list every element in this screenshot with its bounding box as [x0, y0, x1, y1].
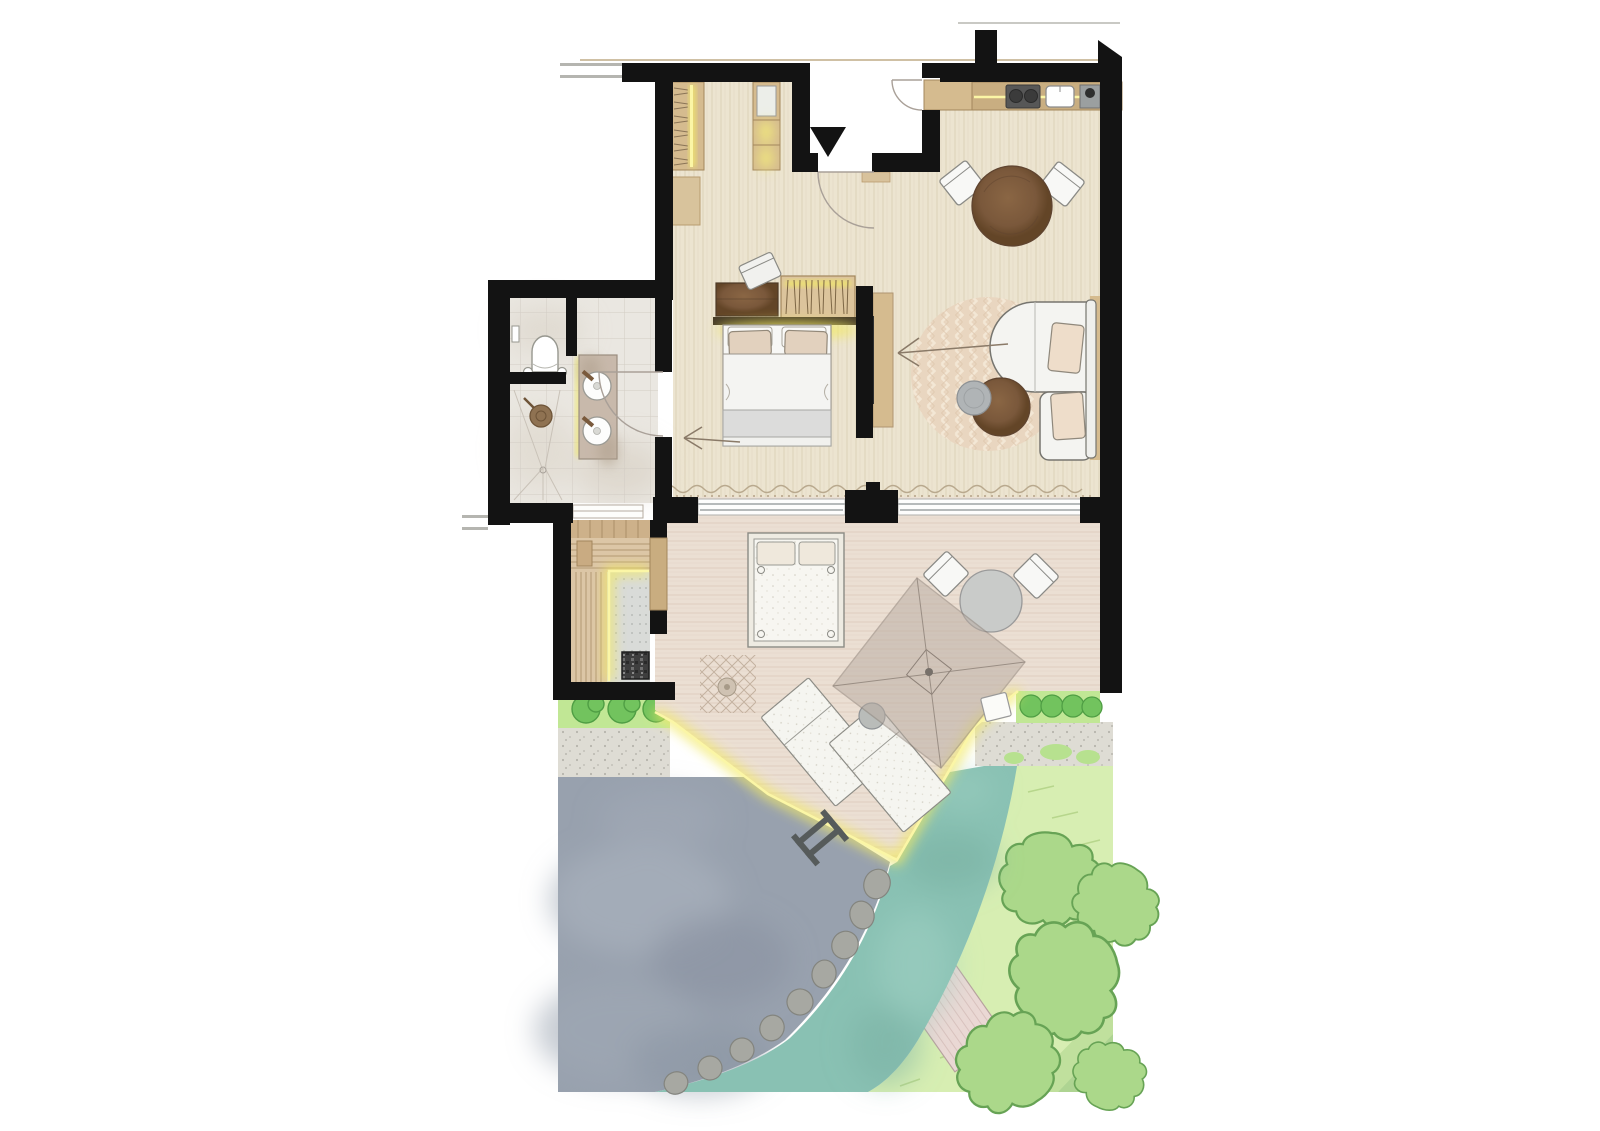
wall-sauna-right-top: [650, 520, 667, 538]
kitchenette: [924, 80, 1122, 110]
sauna-heater: [622, 652, 649, 679]
wall-sauna-bottom: [553, 682, 675, 700]
gravel-texture-left: [558, 728, 670, 777]
floor-plan-canvas: [0, 0, 1600, 1131]
dresser: [716, 283, 778, 316]
wall-pillar-stub: [866, 482, 880, 492]
tv-partition-wall: [856, 286, 873, 438]
sofa-pillow: [1048, 322, 1085, 373]
wall-porch-right: [922, 63, 940, 78]
hall-wardrobe: [672, 82, 704, 170]
floor-plan: [0, 0, 1600, 1131]
gravel-grass-patch: [1004, 752, 1024, 764]
cabinet-light: [759, 120, 773, 144]
double-bed: [723, 325, 831, 446]
wall-window-pillar-right: [1080, 497, 1122, 523]
sliding-window-right: [898, 499, 1098, 515]
duvet: [723, 354, 831, 410]
wall-right: [1100, 63, 1122, 693]
wall-bedroom-left-lower: [655, 437, 672, 499]
open-wardrobe: [781, 276, 855, 318]
wall-shower-divider: [505, 372, 566, 384]
wall-column-top: [975, 30, 997, 63]
wall-bedroom-left-upper: [655, 298, 672, 372]
wall-top-hall: [622, 63, 792, 82]
daybed-pillow: [799, 542, 835, 565]
wall-bath-top: [488, 280, 658, 298]
bed-pillow: [785, 330, 828, 356]
wall-bath-left: [488, 280, 510, 525]
gravel-grass-patch: [1076, 750, 1100, 764]
wall-wc-divider: [566, 298, 577, 356]
shower-head: [530, 405, 552, 427]
sauna-door-frame: [650, 538, 667, 610]
wall-sauna-left: [553, 520, 571, 700]
door-mat: [862, 172, 890, 182]
sauna-headrest: [577, 541, 592, 566]
wall-kitchen-top: [940, 63, 1122, 82]
lattice-mat: [700, 655, 756, 713]
daybed-pillow: [757, 542, 795, 565]
mirror: [757, 86, 776, 116]
sofa-back: [1086, 300, 1096, 458]
sliding-window-left: [698, 499, 845, 515]
pouf: [957, 381, 991, 415]
sofa-pillow: [1050, 392, 1085, 440]
bed-pillow: [729, 330, 772, 356]
wall-window-pillar-left: [653, 497, 698, 523]
hall-bench: [672, 177, 700, 225]
outdoor-daybed: [748, 533, 844, 647]
kitchen-tall-cabinet: [924, 80, 972, 110]
bathroom: [505, 298, 665, 503]
sauna: [571, 505, 650, 682]
cabinet-light: [759, 147, 773, 169]
tv-console: [873, 293, 893, 427]
wall-porch-right-lower: [922, 110, 940, 172]
wall-hall-left: [655, 63, 673, 300]
bed-throw: [723, 410, 831, 437]
wall-porch-bottom-left: [792, 153, 818, 172]
wall-sauna-right-mid: [650, 610, 667, 634]
wall-window-pillar-center: [845, 490, 898, 523]
gravel-grass-patch: [1040, 744, 1072, 760]
